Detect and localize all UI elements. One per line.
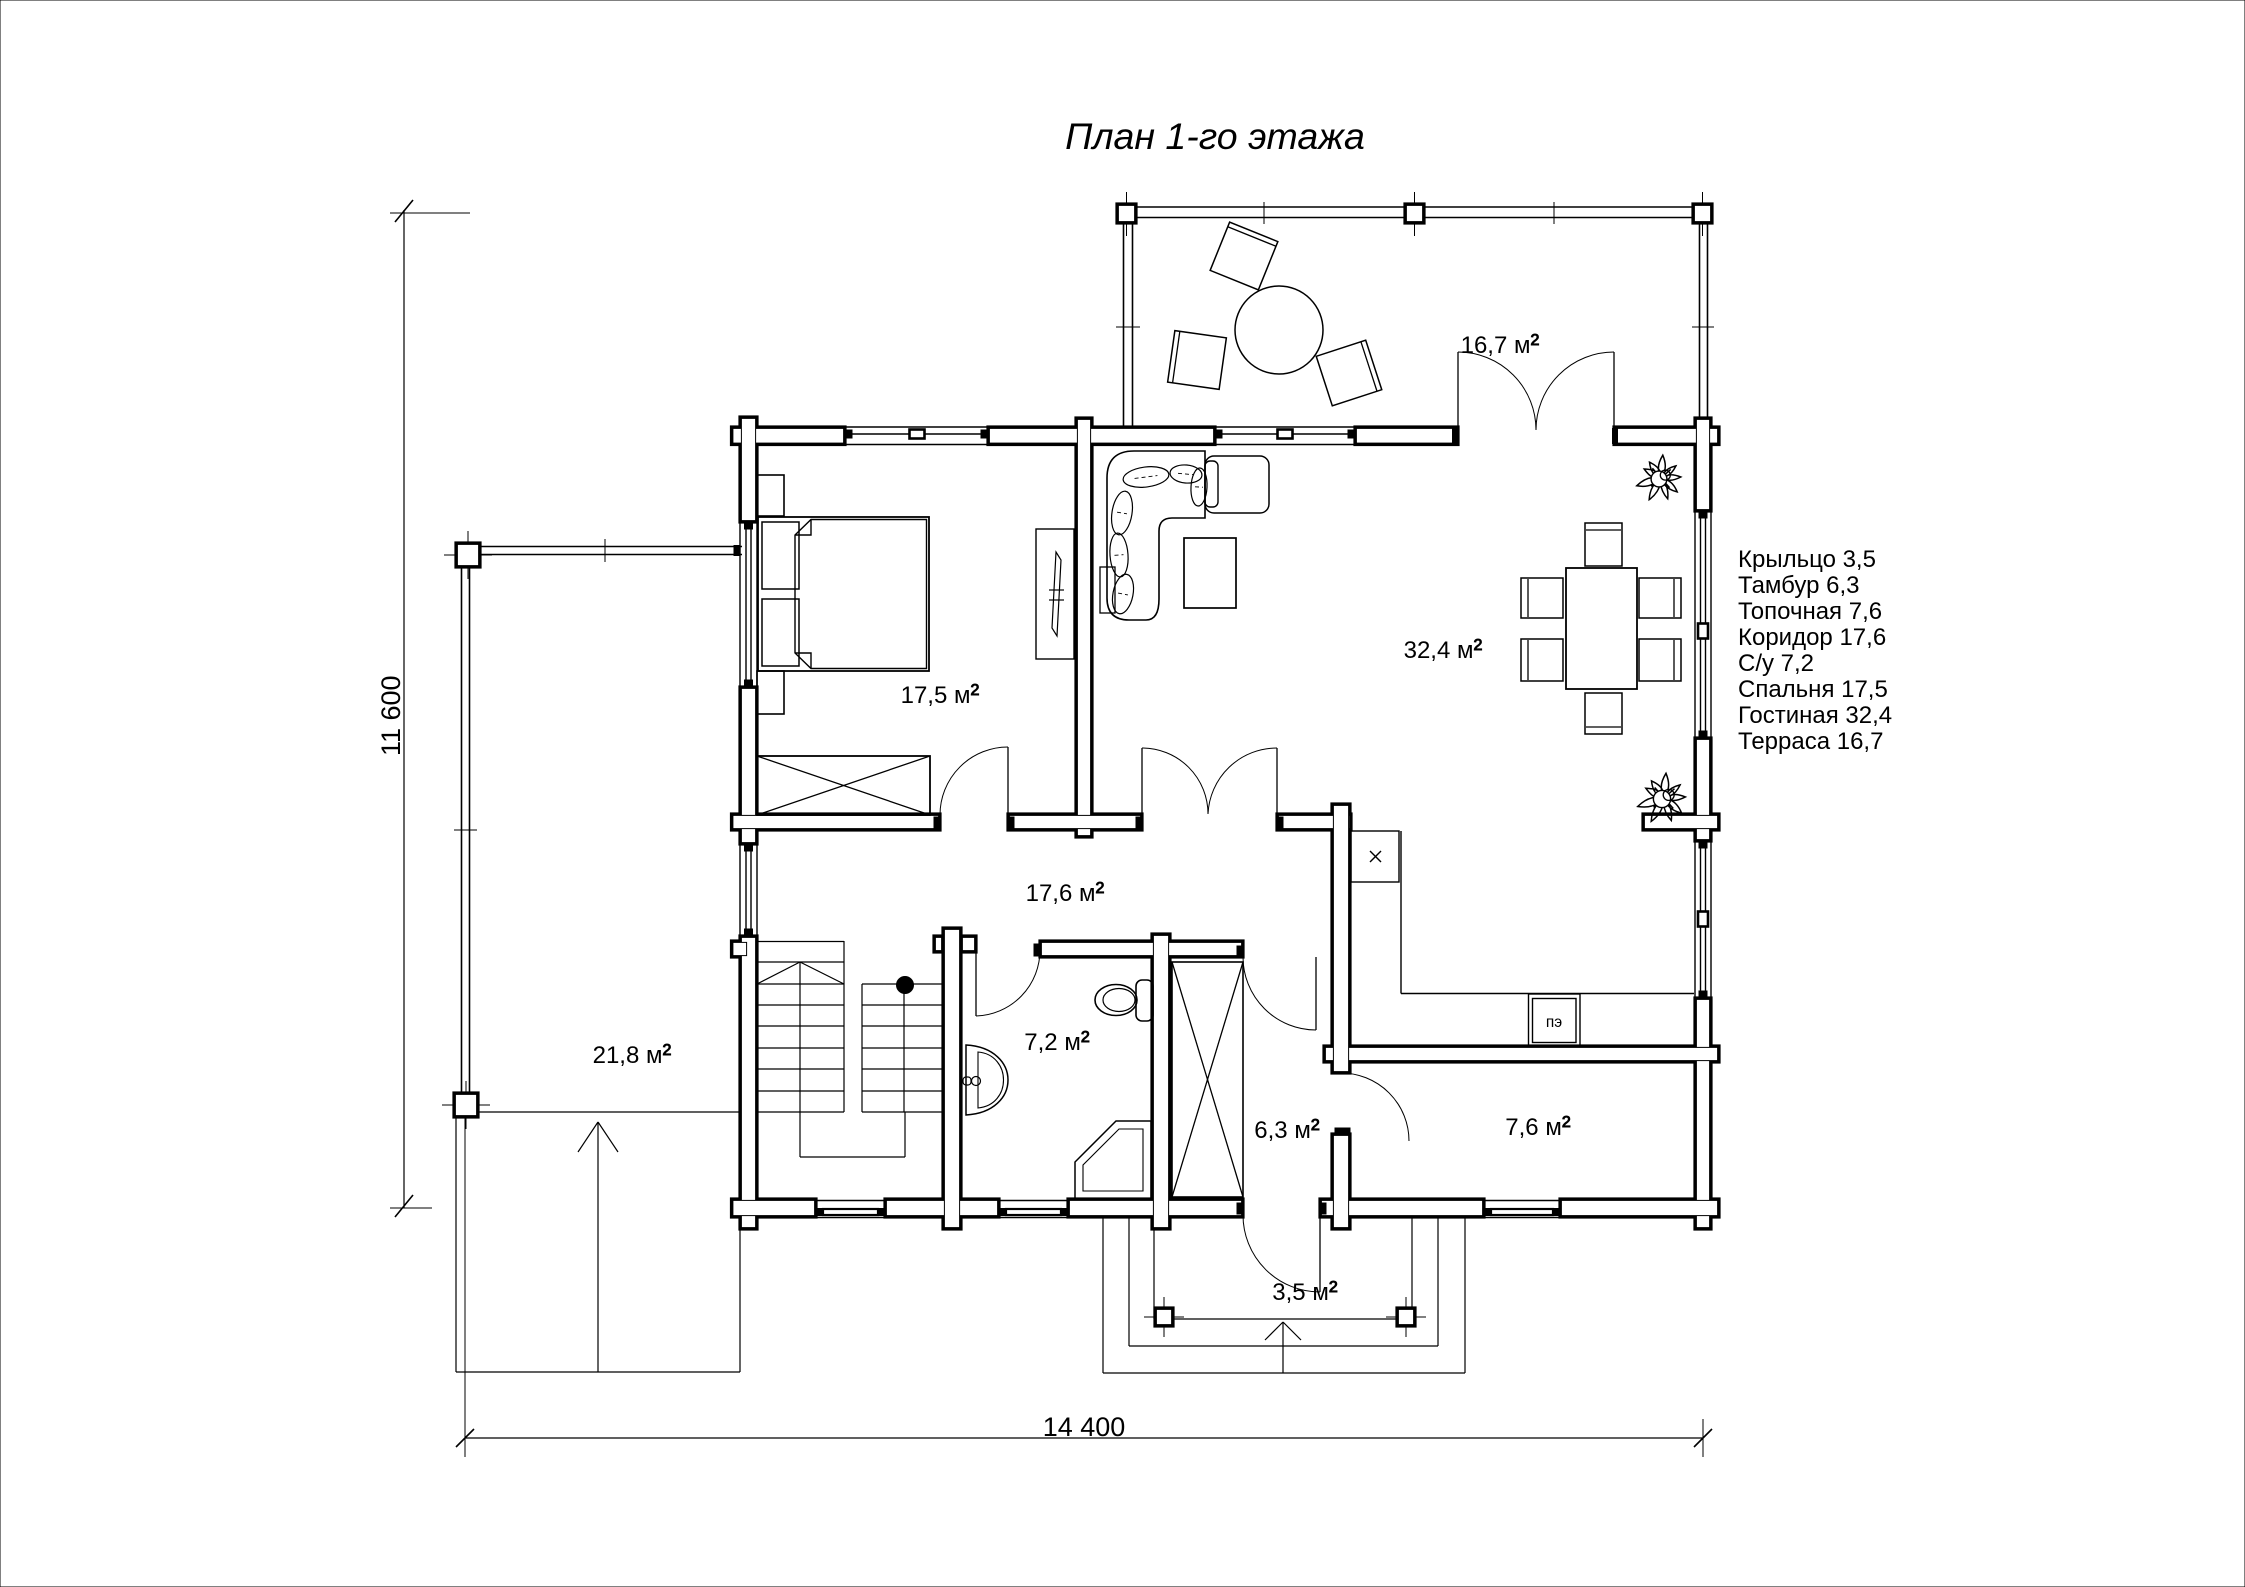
svg-text:21,8 м2: 21,8 м2: [593, 1042, 672, 1069]
svg-text:План 1-го этажа: План 1-го этажа: [1065, 115, 1365, 157]
svg-text:Крыльцо 3,5: Крыльцо 3,5: [1738, 546, 1876, 573]
svg-text:6,3 м2: 6,3 м2: [1254, 1117, 1320, 1144]
svg-text:Тамбур 6,3: Тамбур 6,3: [1738, 572, 1860, 599]
svg-text:7,2 м2: 7,2 м2: [1024, 1029, 1090, 1056]
svg-text:7,6 м2: 7,6 м2: [1505, 1114, 1571, 1141]
svg-text:3,5 м2: 3,5 м2: [1272, 1279, 1338, 1306]
svg-text:14 400: 14 400: [1043, 1412, 1126, 1442]
svg-text:пэ: пэ: [1546, 1014, 1562, 1031]
svg-text:16,7 м2: 16,7 м2: [1461, 332, 1540, 359]
svg-text:Коридор 17,6: Коридор 17,6: [1738, 624, 1886, 651]
svg-text:32,4 м2: 32,4 м2: [1404, 637, 1483, 664]
svg-text:17,5 м2: 17,5 м2: [901, 682, 980, 709]
svg-text:С/у 7,2: С/у 7,2: [1738, 650, 1814, 677]
svg-text:Гостиная 32,4: Гостиная 32,4: [1738, 702, 1892, 729]
svg-text:Спальня 17,5: Спальня 17,5: [1738, 676, 1888, 703]
svg-text:Терраса 16,7: Терраса 16,7: [1738, 728, 1883, 755]
svg-text:Топочная 7,6: Топочная 7,6: [1738, 598, 1882, 625]
svg-text:17,6 м2: 17,6 м2: [1026, 880, 1105, 907]
svg-text:11 600: 11 600: [376, 675, 406, 756]
